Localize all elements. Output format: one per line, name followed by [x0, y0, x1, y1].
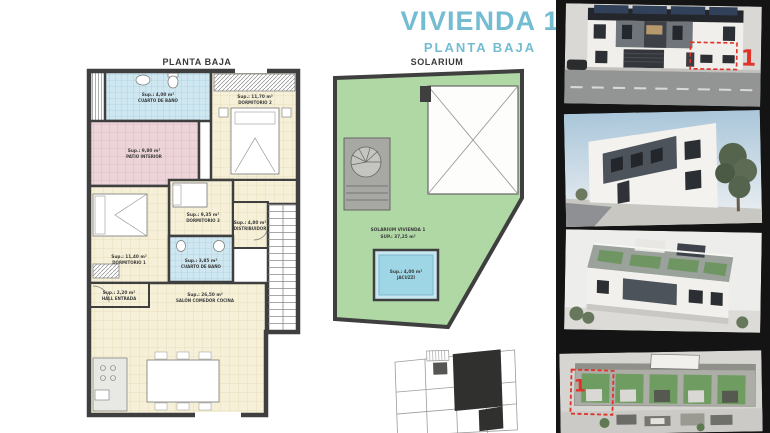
- roof-opening: [428, 86, 518, 194]
- room-label-patio-name: PATIO INTERIOR: [126, 154, 162, 159]
- room-bedroom-1: Sup.: 11,40 m² DORMITORIO 1: [89, 186, 169, 283]
- dining-table-icon: [147, 360, 219, 402]
- sink-icon: [136, 75, 150, 85]
- room-label-bath1-name: CUARTO DE BAÑO: [138, 98, 179, 103]
- corridor: [233, 180, 298, 204]
- sink-icon: [214, 241, 225, 252]
- unit-marker-2: 1: [574, 376, 586, 396]
- photo-rooftop-solarium-aerial: 1: [559, 350, 762, 433]
- room-label-salon-name: SALÓN COMEDOR COCINA: [176, 298, 235, 303]
- window-opening: [235, 68, 267, 73]
- stairwell: [268, 204, 298, 332]
- chimney: [420, 86, 431, 102]
- solarium-plan: SOLARIUM VIVIENDA 1 SUP.: 37,25 m² Sup.:…: [332, 68, 527, 330]
- room-label-dorm1-name: DORMITORIO 1: [112, 260, 146, 265]
- location-key-plan: [389, 344, 524, 433]
- room-bedroom-2: Sup.: 11,70 m² DORMITORIO 2: [211, 71, 298, 180]
- room-label-hall-name: HALL ENTRADA: [102, 296, 137, 301]
- room-bedroom-3: Sup.: 9,35 m² DORMITORIO 3: [169, 180, 233, 236]
- toilet-icon: [177, 241, 186, 252]
- stair-bulkhead: [650, 353, 699, 370]
- pergola: [676, 243, 705, 258]
- brochure-page: VIVIENDA 1 PLANTA BAJA PLANTA BAJA SOLAR…: [0, 0, 770, 433]
- sink-icon: [95, 390, 109, 400]
- spiral-stair-icon: [344, 138, 390, 210]
- car: [567, 59, 587, 70]
- room-label-bath2-name: CUARTO DE BAÑO: [181, 264, 222, 269]
- terrace-door-opening: [195, 412, 241, 418]
- floor-plan-title: PLANTA BAJA: [117, 57, 277, 67]
- room-hall: Sup.: 2,20 m² HALL ENTRADA: [89, 283, 149, 307]
- room-vent-strip: [89, 71, 105, 121]
- photo-strip: 1: [556, 0, 770, 433]
- room-label-distribuidor-name: DISTRIBUIDOR: [234, 226, 267, 231]
- building-facade: [587, 5, 744, 72]
- solarium-unit-label: SOLARIUM VIVIENDA 1: [371, 227, 426, 233]
- garage-door: [623, 49, 664, 68]
- room-bathroom-1: Sup.: 4,00 m² CUARTO DE BAÑO: [105, 71, 211, 121]
- kitchen-counter-icon: [93, 358, 127, 411]
- solarium-plan-title: SOLARIUM: [367, 57, 507, 67]
- ground-floor-plan: Sup.: 4,00 m² CUARTO DE BAÑO Sup.: 11,70…: [85, 68, 301, 418]
- jacuzzi-name-label: JACUZZI: [396, 275, 416, 280]
- wardrobe-icon: [214, 74, 295, 91]
- room-label-dorm2-name: DORMITORIO 2: [238, 100, 272, 105]
- room-distribuidor: Sup.: 4,80 m² DISTRIBUIDOR: [233, 202, 268, 248]
- solar-panels: [594, 5, 628, 14]
- photo-aerial-building-render: [564, 229, 762, 332]
- photo-street-perspective-render: [564, 110, 762, 227]
- room-bathroom-2: Sup.: 3,85 m² CUARTO DE BAÑO: [169, 236, 233, 282]
- solarium-unit-area: SUP.: 37,25 m²: [380, 234, 415, 240]
- jacuzzi: Sup.: 4,00 m² JACUZZI: [374, 250, 438, 300]
- wardrobe-icon: [93, 264, 119, 278]
- room-label-dorm3-name: DORMITORIO 3: [186, 218, 220, 223]
- room-patio: Sup.: 9,80 m² PATIO INTERIOR: [89, 121, 199, 186]
- photo-street-facade-render: 1: [564, 3, 762, 106]
- stair-bulkhead: [634, 239, 665, 254]
- unit-marker-1: 1: [741, 45, 757, 71]
